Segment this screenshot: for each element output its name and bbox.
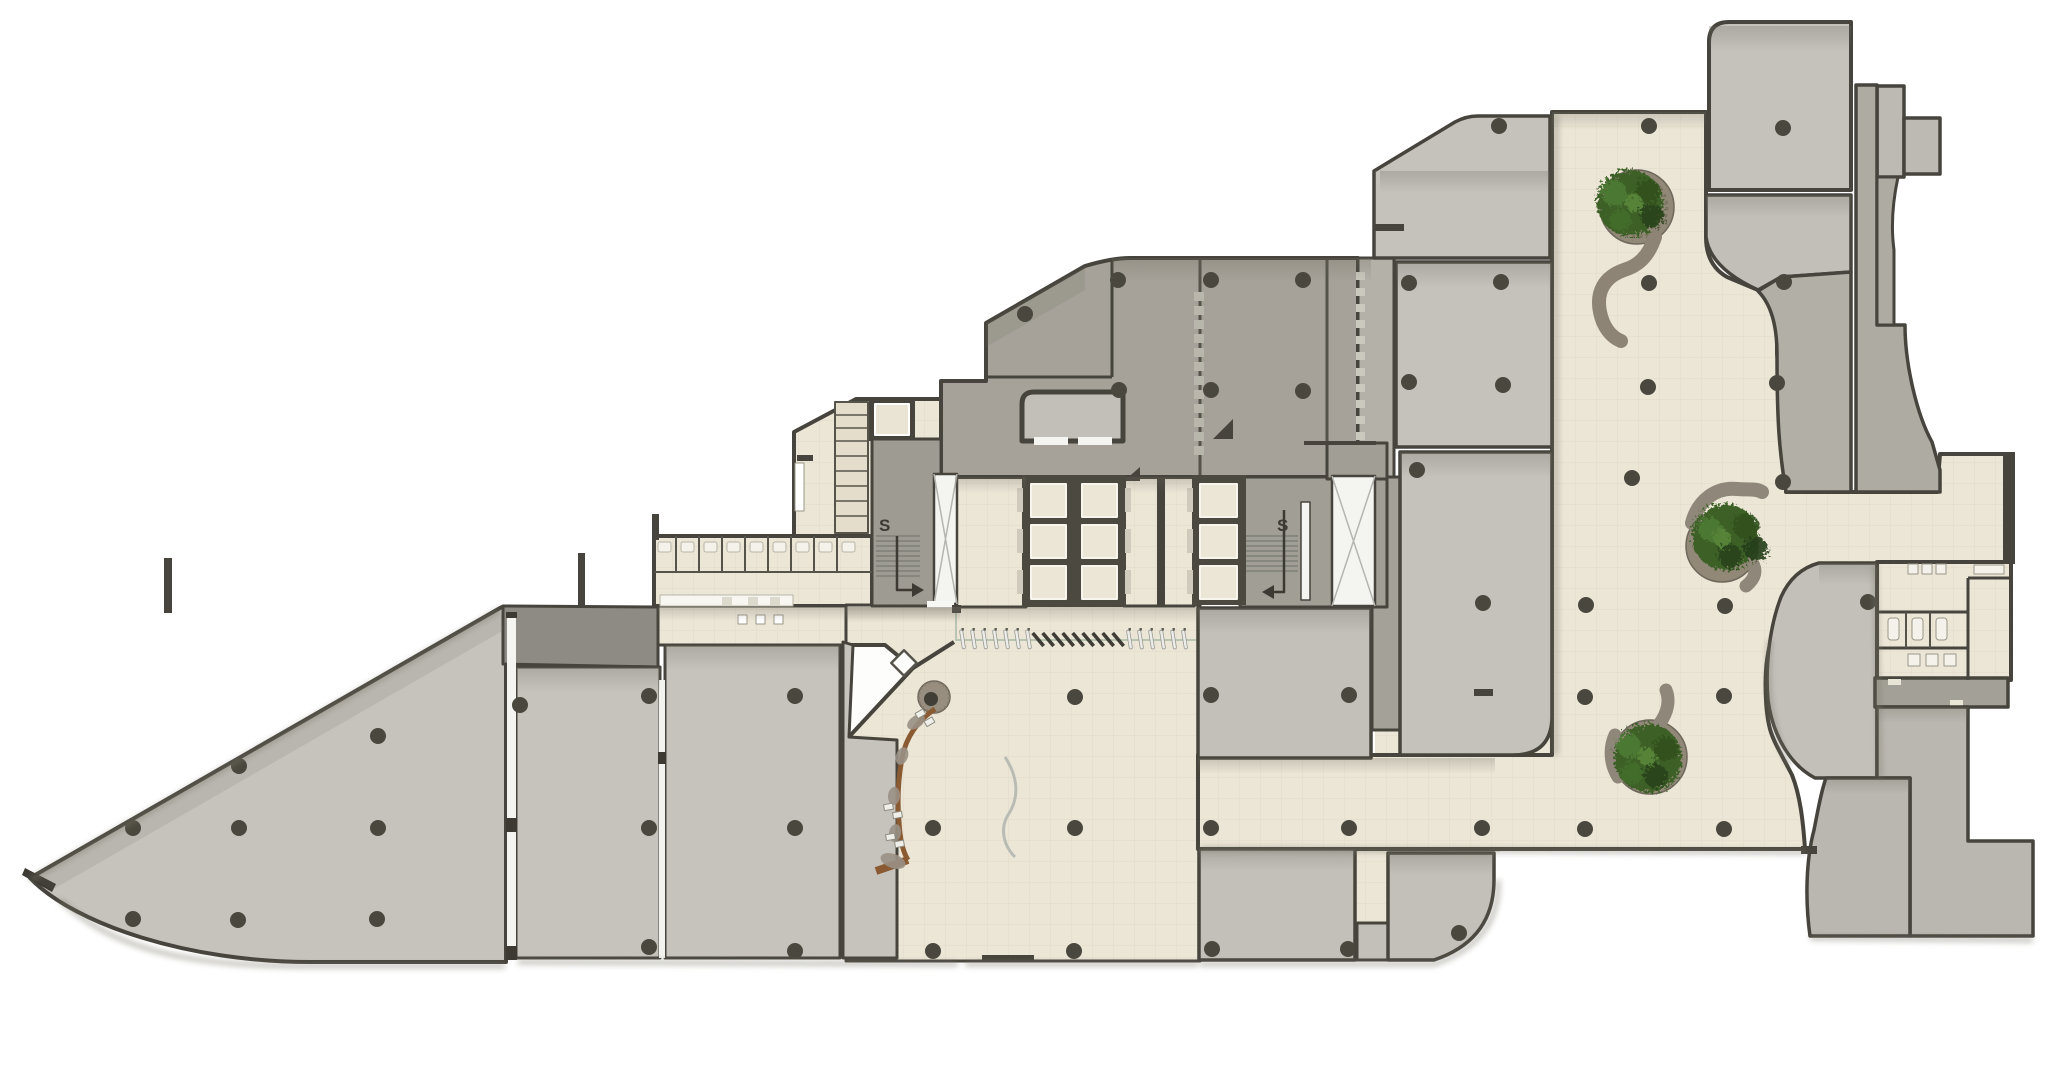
svg-text:S: S (879, 516, 890, 535)
svg-text:S: S (1277, 516, 1288, 535)
